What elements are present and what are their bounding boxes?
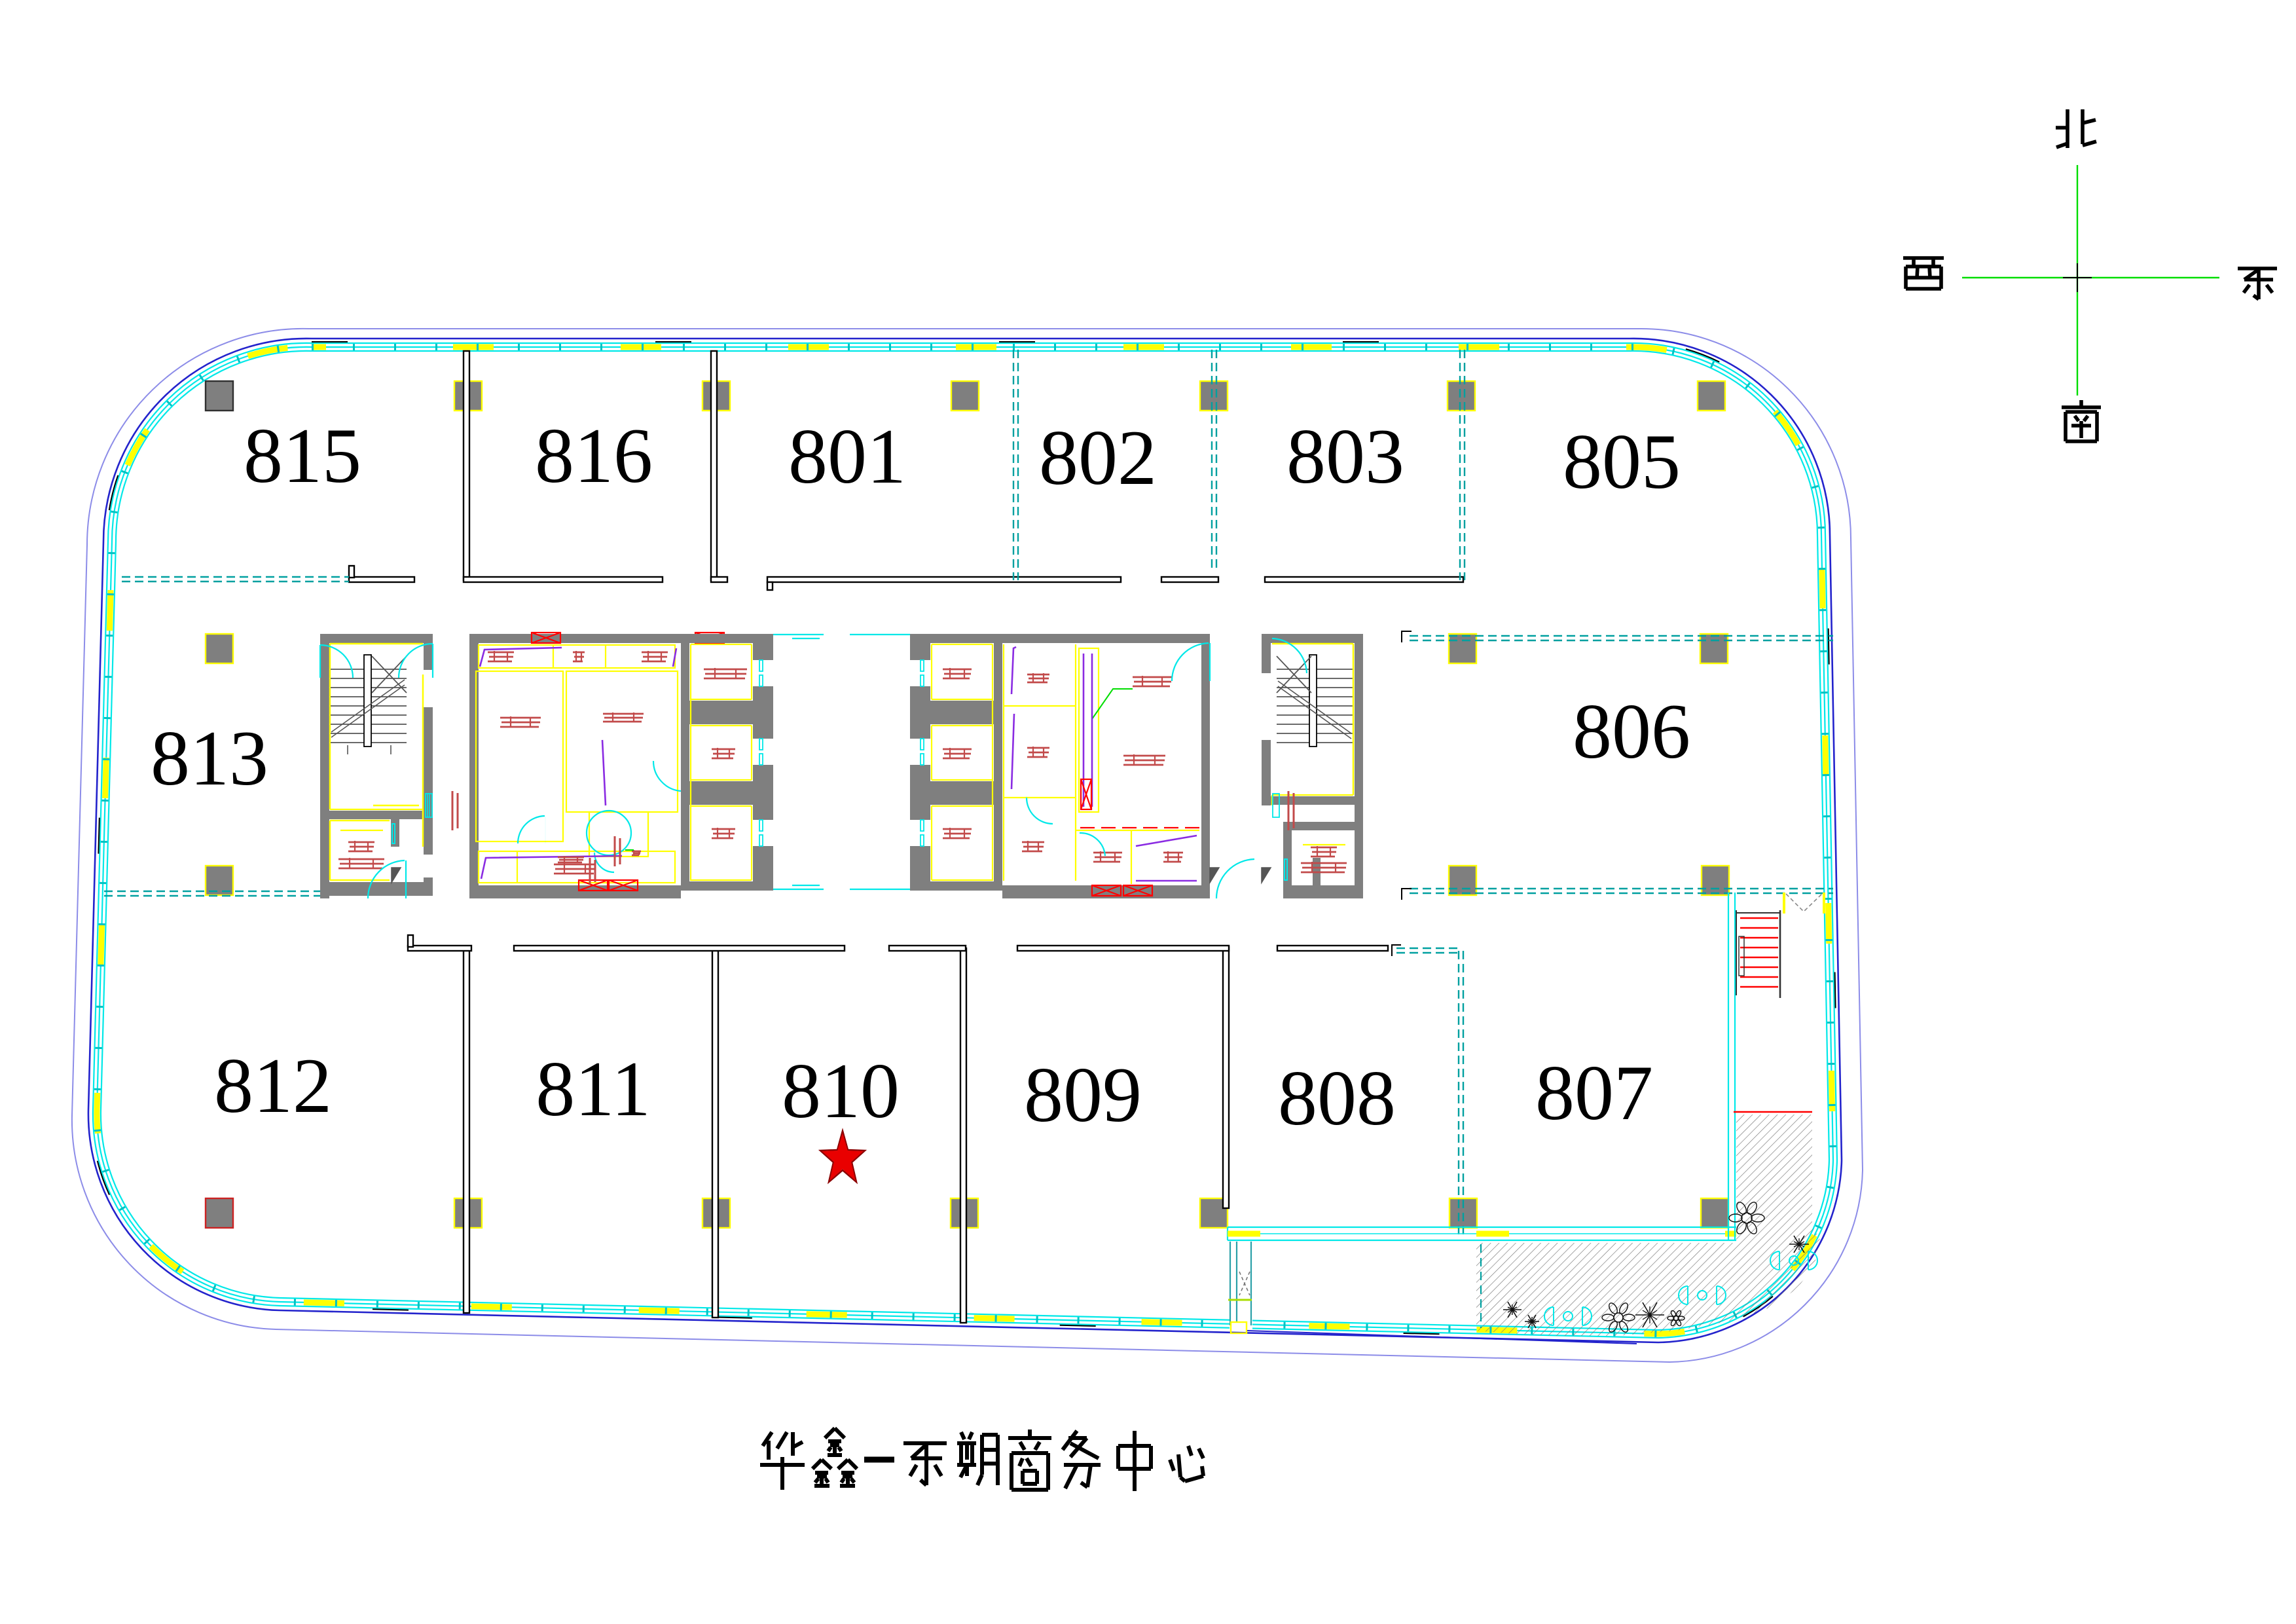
svg-text:813: 813: [151, 714, 268, 802]
svg-text:815: 815: [244, 412, 361, 499]
svg-text:809: 809: [1024, 1051, 1142, 1138]
svg-text:810: 810: [782, 1047, 900, 1134]
svg-text:803: 803: [1286, 413, 1404, 500]
svg-text:812: 812: [214, 1042, 332, 1129]
svg-text:802: 802: [1039, 414, 1157, 501]
svg-text:801: 801: [788, 413, 906, 500]
svg-text:806: 806: [1573, 688, 1690, 775]
svg-text:816: 816: [535, 412, 653, 499]
svg-text:811: 811: [536, 1045, 651, 1132]
svg-text:807: 807: [1535, 1049, 1653, 1136]
svg-text:805: 805: [1563, 418, 1681, 505]
svg-text:808: 808: [1278, 1054, 1396, 1141]
